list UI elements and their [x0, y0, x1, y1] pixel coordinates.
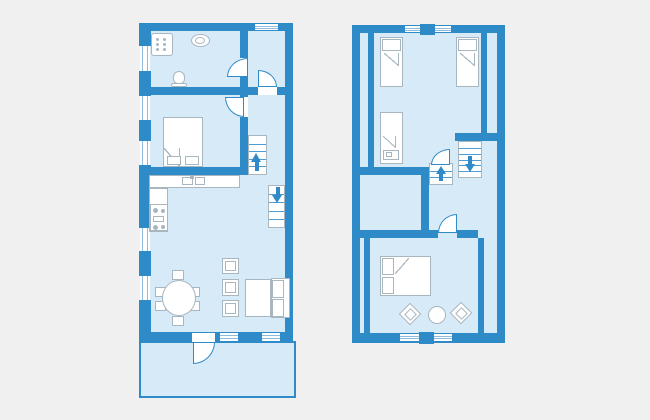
window-glass: [434, 338, 452, 339]
window-glass: [400, 336, 419, 337]
bed-pillow: [458, 39, 477, 51]
knee-wall: [364, 238, 370, 333]
window-glass: [434, 336, 452, 337]
window-pillar: [420, 24, 435, 35]
bed-pillow-mark: [386, 152, 392, 157]
window-glass: [405, 28, 420, 29]
window: [435, 26, 451, 32]
stairs-down-tread: [459, 154, 481, 155]
bed-pillow: [382, 258, 394, 275]
wall-stairwell: [455, 133, 497, 141]
window-glass: [405, 30, 420, 31]
bed-fold-edge: [398, 53, 399, 66]
bed-pillow: [382, 39, 401, 51]
round-table: [428, 306, 446, 324]
knee-wall: [368, 33, 374, 167]
window-glass: [435, 30, 451, 31]
bed-fold-edge: [395, 136, 396, 148]
stairs-up-arrow-head: [436, 166, 446, 174]
bed-pillow: [382, 277, 394, 294]
bed-fold: [395, 258, 409, 274]
bed-fold: [460, 53, 475, 66]
stairs-down-arrow-stem: [468, 156, 472, 164]
bed-fold-edge: [474, 53, 475, 66]
stairs-down-arrow-head: [465, 164, 475, 172]
wall-middle-room-bottom: [360, 230, 421, 238]
wall-hall-b: [457, 230, 478, 238]
knee-wall: [481, 33, 487, 133]
wall-middle-room-right: [421, 167, 429, 238]
stairs-down-tread: [459, 148, 481, 149]
floor-plan-canvas: [0, 0, 650, 420]
window: [405, 26, 420, 32]
stairs-up-arrow: [436, 166, 446, 181]
window-pillar: [419, 332, 434, 344]
stairs-down-arrow: [465, 156, 475, 172]
bed-fold: [384, 53, 399, 66]
window-glass: [400, 338, 419, 339]
window-glass: [435, 28, 451, 29]
wall-hall-a: [429, 230, 438, 238]
upper-floor-plan: [0, 0, 650, 420]
stairs-up-arrow-stem: [439, 174, 443, 181]
knee-wall: [478, 238, 484, 333]
wall-top-room-bottom: [360, 167, 421, 175]
